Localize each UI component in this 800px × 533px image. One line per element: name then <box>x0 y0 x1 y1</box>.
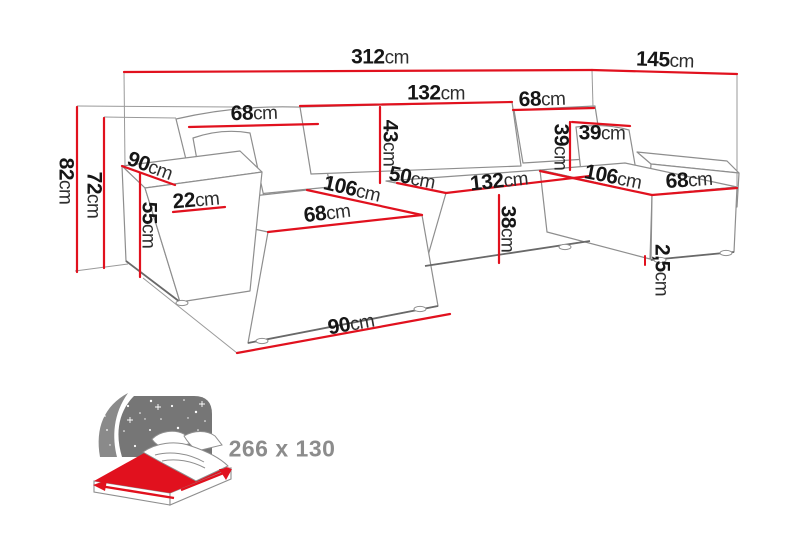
chaise-right-front <box>651 187 737 260</box>
bed-icon <box>93 393 232 505</box>
diagram-canvas: 312cm 145cm 132cm 68cm 68cm 43cm 39cm 39… <box>0 0 800 533</box>
dim-line-total-depth <box>592 70 737 74</box>
dim-line-total-width <box>124 70 592 72</box>
sofa-diagram-svg <box>0 0 800 533</box>
backrest-middle <box>300 102 521 174</box>
